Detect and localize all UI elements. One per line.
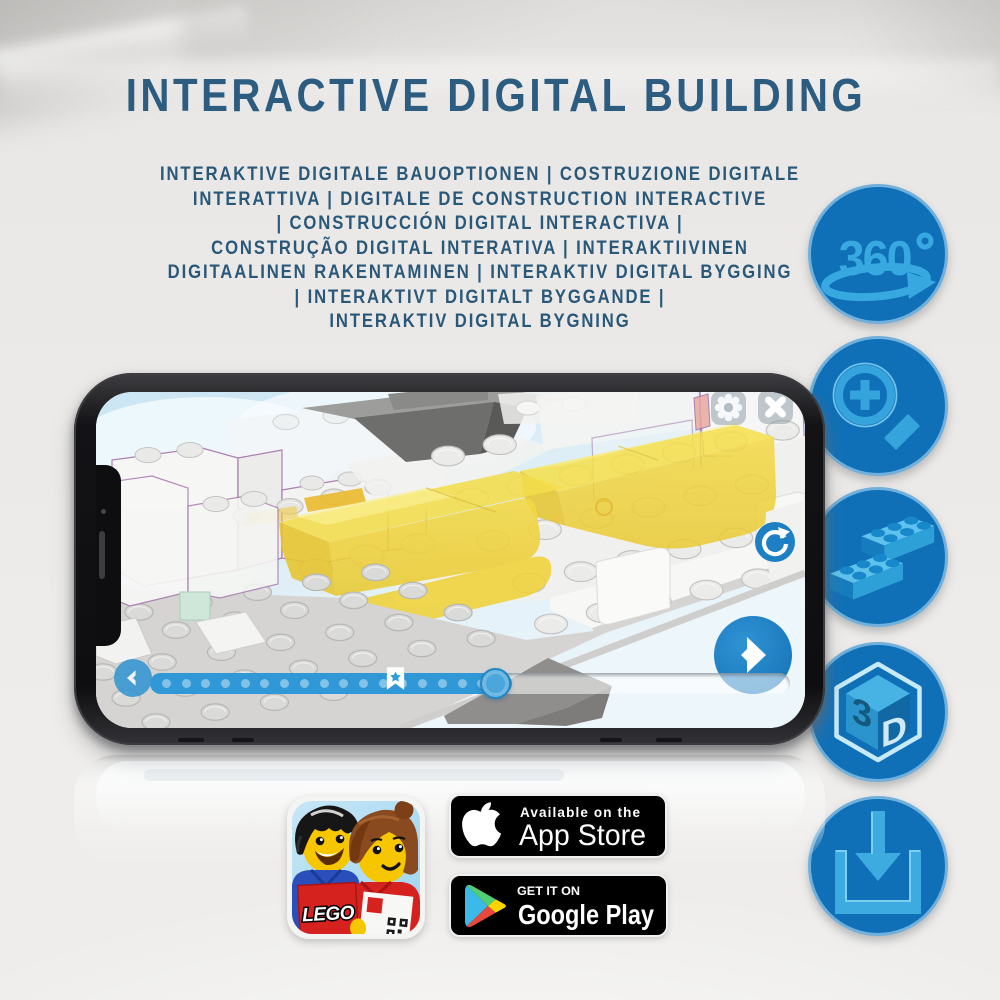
svg-text:360: 360 <box>839 232 911 286</box>
svg-text:App Store: App Store <box>519 819 646 852</box>
svg-text:D: D <box>881 706 907 756</box>
svg-text:Google Play: Google Play <box>518 899 655 930</box>
svg-text:Available on the: Available on the <box>520 805 640 820</box>
svg-text:GET IT ON: GET IT ON <box>517 886 580 898</box>
svg-text:3: 3 <box>852 689 872 737</box>
svg-text:LEGO: LEGO <box>302 903 356 927</box>
